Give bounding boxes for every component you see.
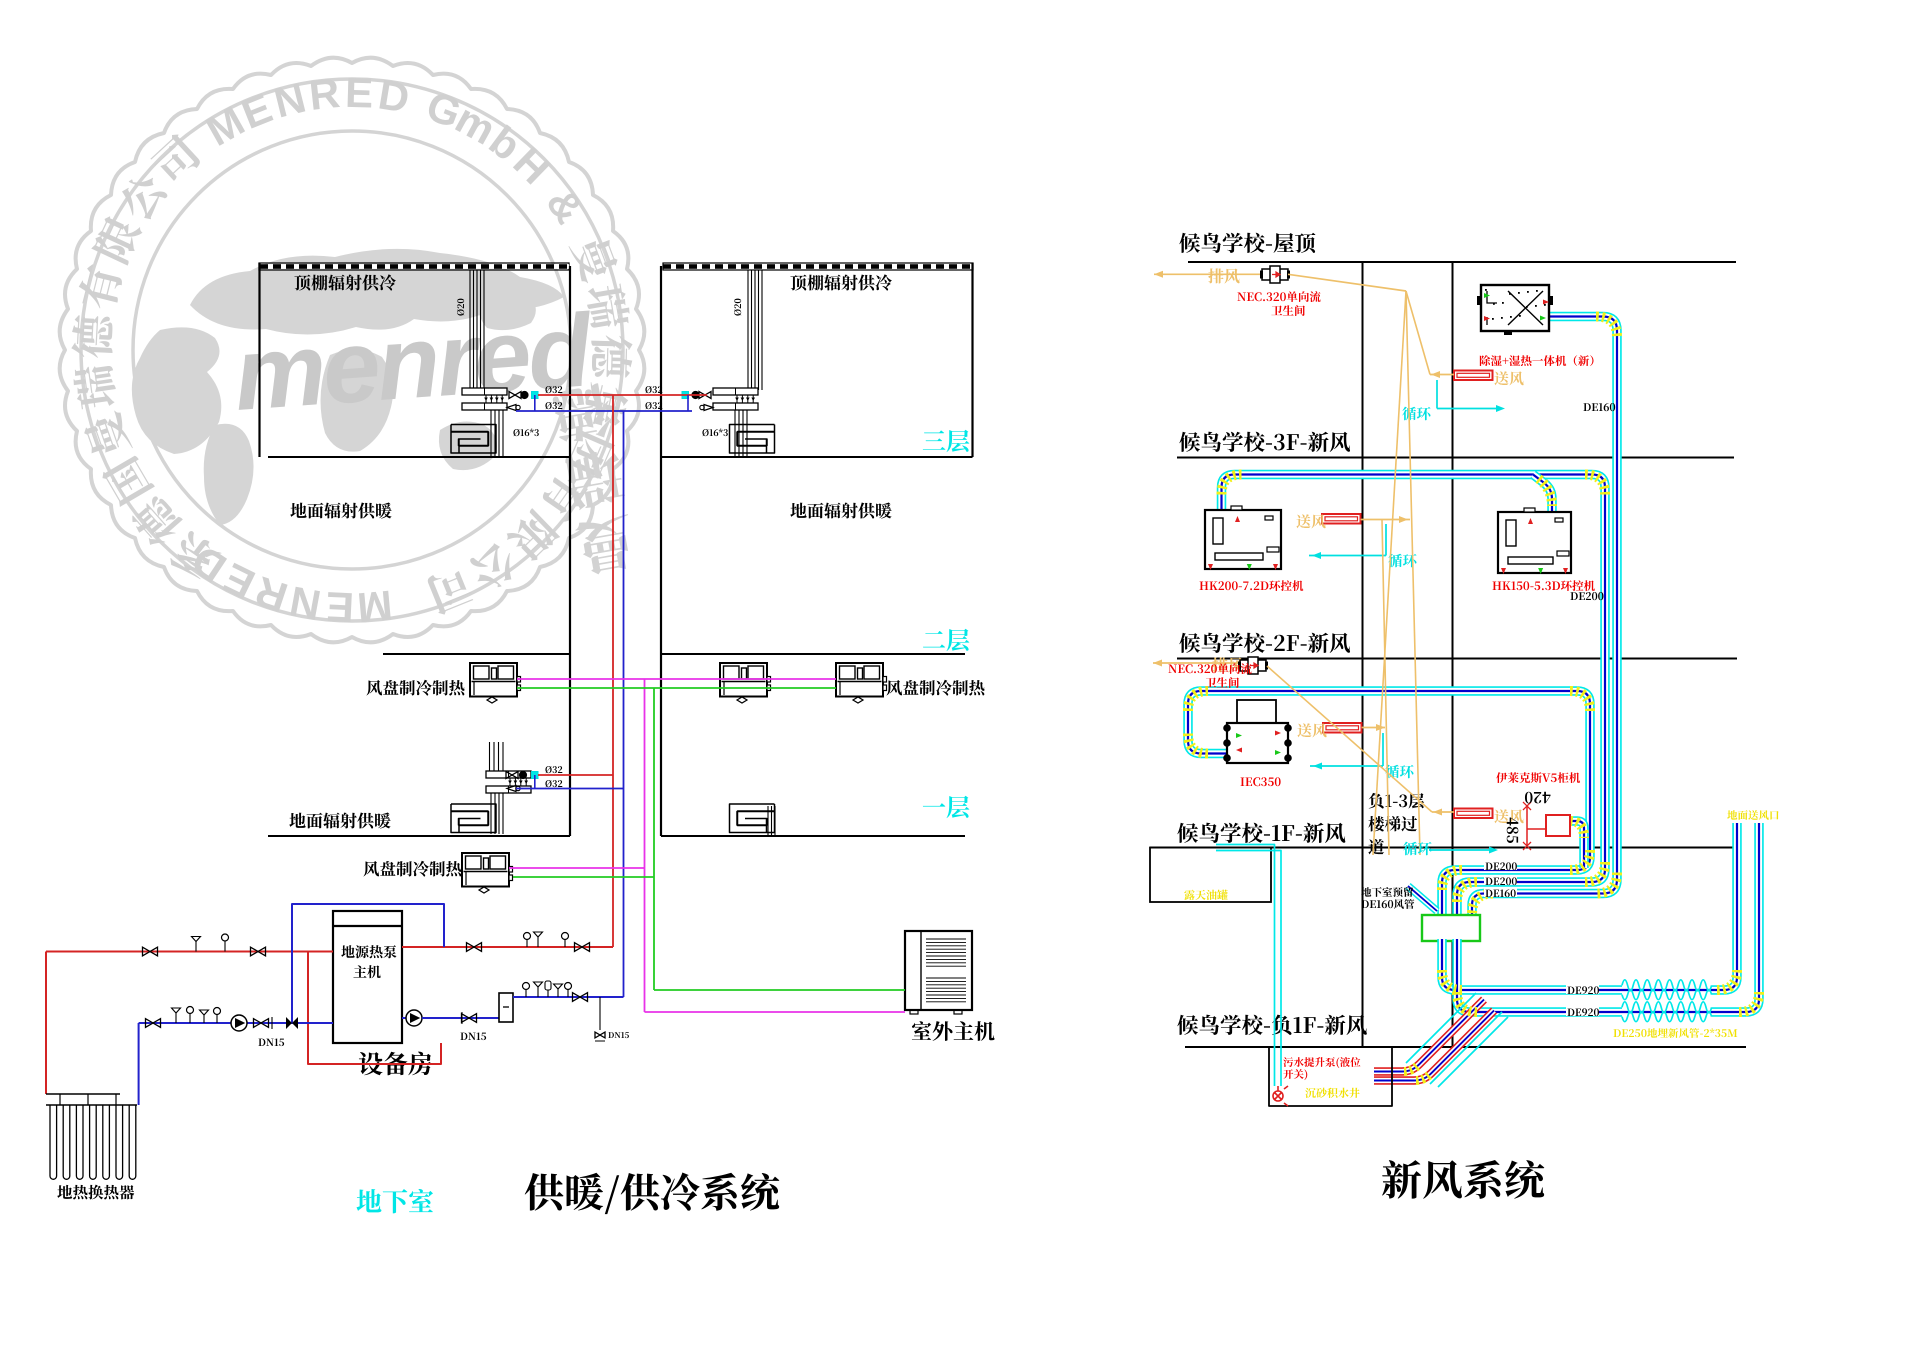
svg-text:E: E [325,583,355,631]
svg-text:R: R [307,69,342,119]
svg-text:M: M [355,581,394,631]
svg-text:E: E [345,69,374,117]
